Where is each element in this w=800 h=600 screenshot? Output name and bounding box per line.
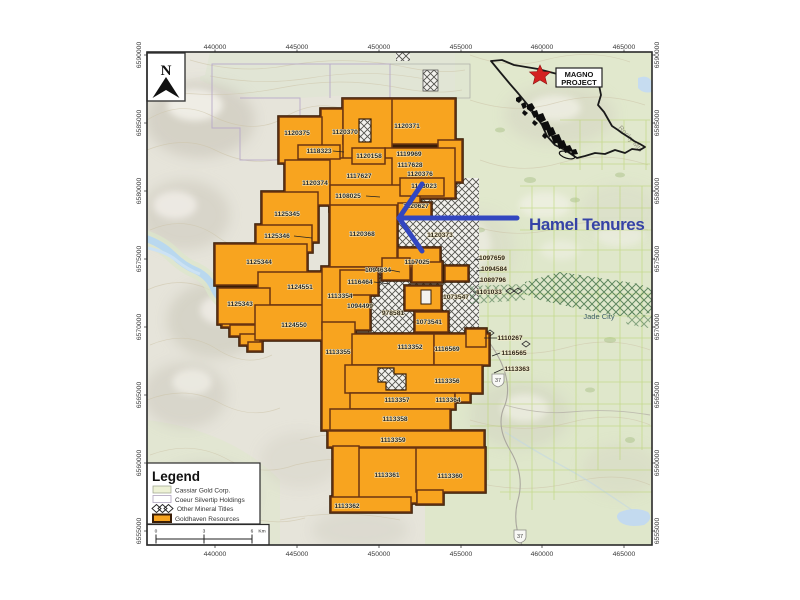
svg-text:1113356: 1113356 [434, 378, 460, 385]
svg-text:6565000: 6565000 [136, 382, 143, 409]
svg-text:0: 0 [155, 529, 158, 535]
svg-text:1119969: 1119969 [396, 151, 422, 158]
svg-text:1113358: 1113358 [382, 416, 408, 423]
svg-text:N: N [161, 63, 172, 79]
svg-text:Km: Km [258, 529, 265, 535]
svg-text:978581: 978581 [382, 310, 405, 317]
svg-text:1110267: 1110267 [497, 335, 523, 342]
svg-text:465000: 465000 [613, 551, 636, 558]
svg-text:455000: 455000 [450, 551, 473, 558]
svg-text:1125344: 1125344 [246, 259, 272, 266]
svg-text:6570000: 6570000 [136, 314, 143, 341]
svg-text:450000: 450000 [368, 551, 391, 558]
svg-text:6575000: 6575000 [654, 246, 661, 273]
svg-text:1113362: 1113362 [334, 503, 360, 510]
svg-text:1124550: 1124550 [281, 322, 307, 329]
svg-text:6560000: 6560000 [654, 450, 661, 477]
svg-text:6565000: 6565000 [654, 382, 661, 409]
svg-text:1125346: 1125346 [264, 233, 290, 240]
svg-text:PROJECT: PROJECT [561, 78, 597, 87]
svg-text:1120368: 1120368 [349, 231, 375, 238]
svg-text:6555000: 6555000 [136, 518, 143, 545]
svg-text:1073547: 1073547 [443, 294, 469, 301]
svg-text:37: 37 [517, 534, 523, 540]
svg-text:Cassiar Gold Corp.: Cassiar Gold Corp. [175, 488, 230, 495]
svg-text:1118323: 1118323 [306, 148, 332, 155]
svg-text:6570000: 6570000 [654, 314, 661, 341]
svg-text:Goldhaven Resources: Goldhaven Resources [175, 516, 240, 523]
svg-text:1113352: 1113352 [397, 344, 423, 351]
svg-text:6580000: 6580000 [654, 178, 661, 205]
svg-text:1108025: 1108025 [335, 193, 361, 200]
svg-text:1113355: 1113355 [325, 349, 351, 356]
svg-text:1120370: 1120370 [332, 129, 358, 136]
svg-text:1117628: 1117628 [397, 162, 423, 169]
svg-text:6575000: 6575000 [136, 246, 143, 273]
svg-text:Hamel Tenures: Hamel Tenures [529, 215, 644, 234]
svg-text:37: 37 [495, 378, 501, 384]
svg-text:1125345: 1125345 [274, 211, 300, 218]
svg-text:1113359: 1113359 [380, 437, 406, 444]
svg-text:1094634: 1094634 [365, 267, 391, 274]
svg-text:1113364: 1113364 [435, 397, 461, 404]
svg-text:6555000: 6555000 [654, 518, 661, 545]
svg-text:1113354: 1113354 [327, 293, 353, 300]
svg-text:1117025: 1117025 [404, 259, 430, 266]
svg-text:1120373: 1120373 [427, 232, 453, 239]
svg-text:1089796: 1089796 [480, 277, 506, 284]
svg-text:1116565: 1116565 [501, 350, 527, 357]
svg-text:6585000: 6585000 [654, 110, 661, 137]
svg-text:Coeur Silvertip Holdings: Coeur Silvertip Holdings [175, 497, 245, 504]
svg-text:3: 3 [203, 529, 206, 535]
svg-text:1094584: 1094584 [481, 266, 507, 273]
svg-text:1113361: 1113361 [374, 472, 400, 479]
svg-text:6590000: 6590000 [654, 42, 661, 69]
svg-text:1113360: 1113360 [437, 473, 463, 480]
svg-text:1120376: 1120376 [407, 171, 433, 178]
svg-text:1113357: 1113357 [384, 397, 410, 404]
svg-text:6560000: 6560000 [136, 450, 143, 477]
svg-text:1124551: 1124551 [287, 284, 313, 291]
svg-text:Legend: Legend [152, 469, 200, 484]
svg-text:440000: 440000 [204, 551, 227, 558]
svg-text:1125343: 1125343 [227, 301, 253, 308]
svg-text:1117627: 1117627 [346, 173, 372, 180]
svg-text:1116464: 1116464 [347, 279, 373, 286]
svg-text:445000: 445000 [286, 551, 309, 558]
svg-text:1120371: 1120371 [394, 123, 420, 130]
svg-text:6585000: 6585000 [136, 110, 143, 137]
svg-text:6580000: 6580000 [136, 178, 143, 205]
svg-text:1101033: 1101033 [476, 289, 502, 296]
svg-text:1094499: 1094499 [347, 303, 373, 310]
svg-text:1116569: 1116569 [434, 346, 460, 353]
svg-text:Other Mineral Titles: Other Mineral Titles [177, 506, 234, 513]
svg-text:1113363: 1113363 [504, 366, 530, 373]
svg-text:1073541: 1073541 [416, 319, 442, 326]
svg-text:460000: 460000 [531, 551, 554, 558]
svg-text:6: 6 [251, 529, 254, 535]
svg-text:6590000: 6590000 [136, 42, 143, 69]
svg-text:1120158: 1120158 [356, 153, 382, 160]
svg-text:1120374: 1120374 [302, 180, 328, 187]
svg-text:1120375: 1120375 [284, 130, 310, 137]
svg-text:1097659: 1097659 [479, 255, 505, 262]
